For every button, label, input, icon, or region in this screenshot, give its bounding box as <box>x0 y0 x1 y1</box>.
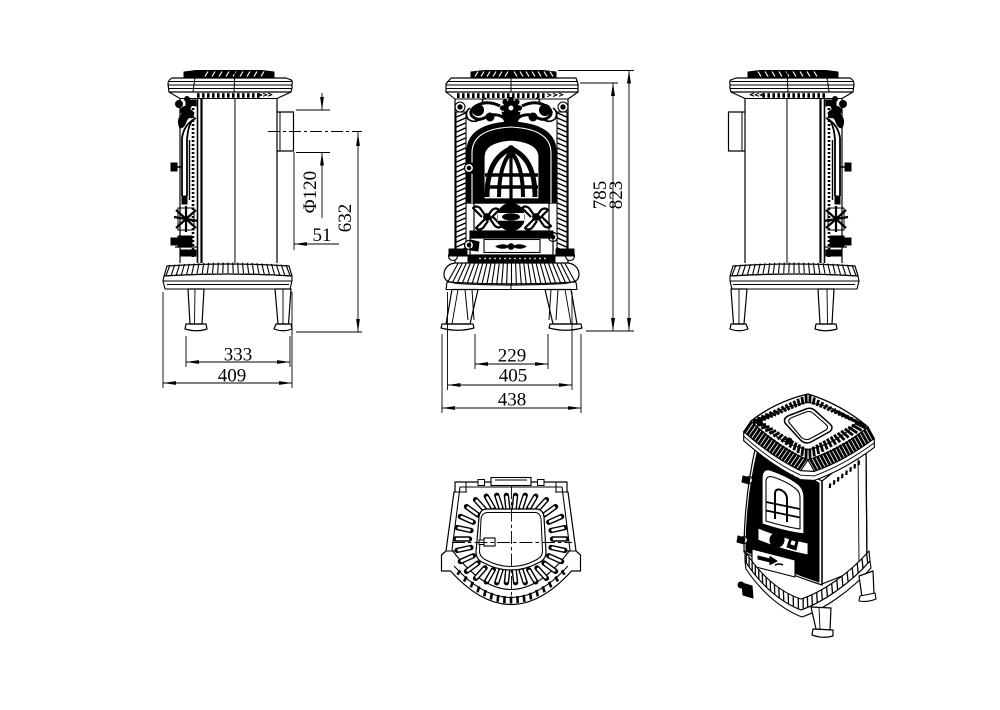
svg-text:51: 51 <box>313 225 332 246</box>
svg-text:823: 823 <box>606 181 627 210</box>
svg-text:Φ120: Φ120 <box>300 171 321 213</box>
svg-text:438: 438 <box>498 390 527 411</box>
svg-text:632: 632 <box>335 204 356 233</box>
svg-text:409: 409 <box>218 366 247 387</box>
svg-text:333: 333 <box>224 345 253 366</box>
svg-text:229: 229 <box>498 346 527 367</box>
svg-text:405: 405 <box>499 366 528 387</box>
